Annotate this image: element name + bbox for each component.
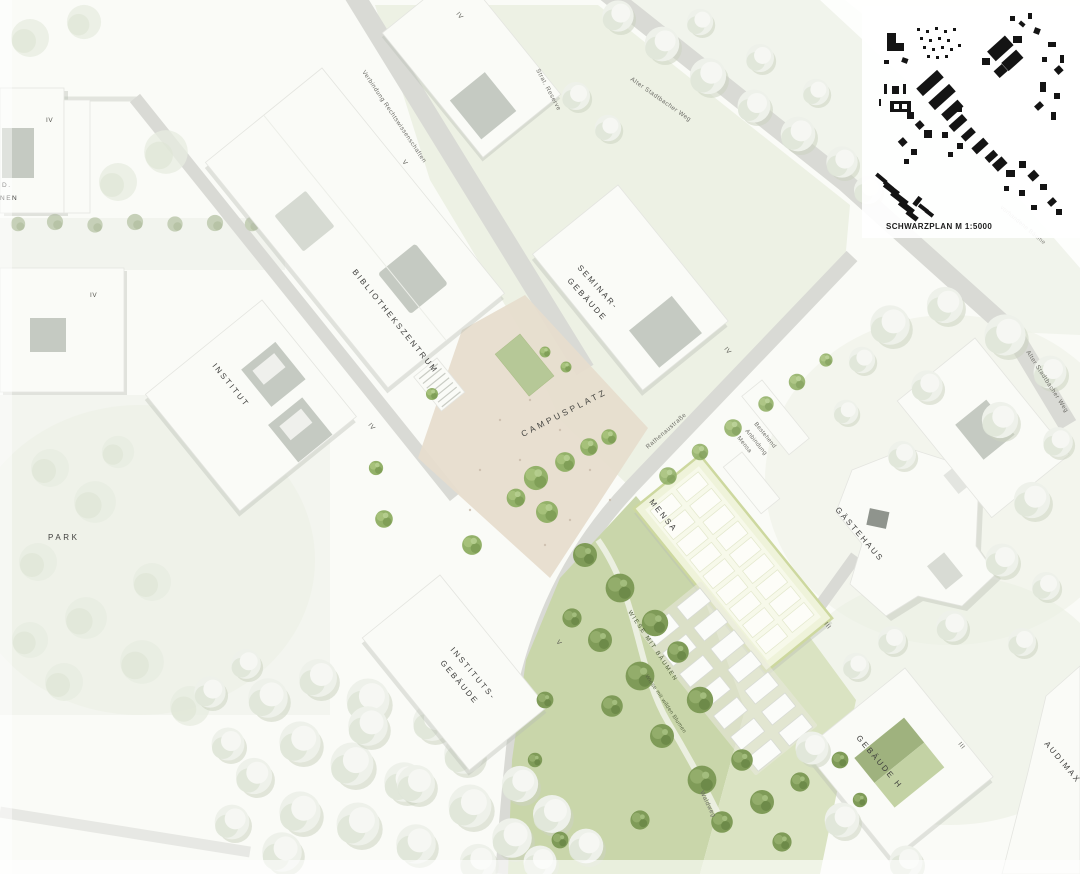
tree bbox=[561, 362, 572, 373]
tree bbox=[573, 543, 597, 567]
tree bbox=[19, 543, 57, 581]
tree bbox=[11, 19, 49, 57]
tree bbox=[790, 772, 809, 791]
tree bbox=[650, 724, 674, 748]
edge-fade-bottom bbox=[0, 860, 1080, 874]
tree bbox=[555, 452, 575, 472]
tree bbox=[144, 130, 188, 174]
tree bbox=[167, 216, 182, 231]
tree bbox=[832, 752, 849, 769]
tree bbox=[87, 217, 102, 232]
tree bbox=[207, 215, 223, 231]
site-plan-canvas: BIBLIOTHEKSZENTRUM SEMINAR- GEBÄUDE INST… bbox=[0, 0, 1080, 874]
tree bbox=[630, 810, 649, 829]
tree bbox=[731, 749, 753, 771]
tree bbox=[120, 640, 164, 684]
tree bbox=[687, 687, 713, 713]
tree bbox=[853, 793, 867, 807]
floor-label-wohnen-nord: IV bbox=[46, 117, 53, 124]
label-park: PARK bbox=[48, 533, 80, 542]
tree bbox=[528, 753, 542, 767]
tree bbox=[789, 374, 806, 391]
tree bbox=[667, 641, 689, 663]
tree bbox=[606, 574, 635, 603]
tree bbox=[552, 832, 569, 849]
tree bbox=[67, 5, 101, 39]
tree bbox=[772, 832, 791, 851]
tree bbox=[45, 663, 83, 701]
schwarzplan-label: SCHWARZPLAN M 1:5000 bbox=[886, 222, 992, 231]
tree bbox=[99, 163, 137, 201]
floor-label-wohnen-sued: IV bbox=[90, 292, 97, 299]
tree bbox=[507, 489, 526, 508]
tree bbox=[724, 419, 742, 437]
tree bbox=[462, 535, 482, 555]
courtyard bbox=[30, 318, 66, 352]
tree bbox=[74, 481, 116, 523]
tree bbox=[127, 214, 143, 230]
site-plan: BIBLIOTHEKSZENTRUM SEMINAR- GEBÄUDE INST… bbox=[0, 0, 1080, 874]
tree bbox=[133, 563, 171, 601]
edge-fade-left bbox=[0, 0, 12, 874]
tree bbox=[819, 353, 832, 366]
tree bbox=[750, 790, 774, 814]
tree bbox=[65, 597, 107, 639]
tree bbox=[601, 429, 616, 444]
tree bbox=[692, 444, 709, 461]
tree bbox=[562, 608, 581, 627]
tree bbox=[659, 467, 677, 485]
tree bbox=[12, 622, 48, 658]
building-wohnen-sued bbox=[0, 268, 127, 395]
tree bbox=[540, 347, 551, 358]
tree bbox=[102, 436, 134, 468]
tree bbox=[31, 449, 69, 487]
tree bbox=[375, 510, 393, 528]
tree bbox=[580, 438, 598, 456]
tree bbox=[524, 466, 548, 490]
tree bbox=[588, 628, 612, 652]
tree bbox=[426, 388, 438, 400]
tree bbox=[536, 501, 558, 523]
tree bbox=[537, 692, 554, 709]
tree bbox=[758, 396, 773, 411]
tree bbox=[11, 217, 25, 231]
tree bbox=[369, 461, 383, 475]
tree bbox=[47, 214, 63, 230]
tree bbox=[601, 695, 623, 717]
